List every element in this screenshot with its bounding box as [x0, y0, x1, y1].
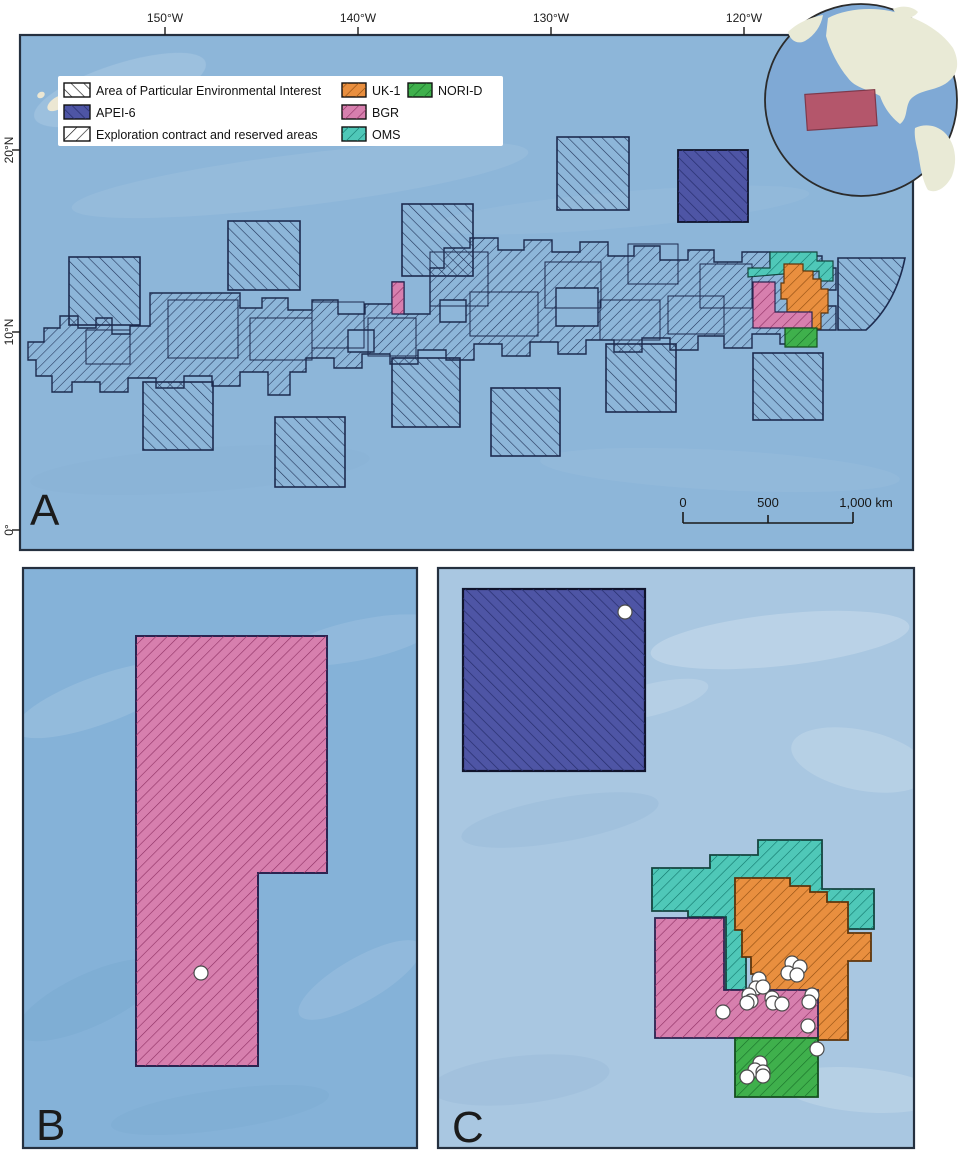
sampling-station-dot	[740, 1070, 754, 1084]
legend-label-apei6: APEI-6	[96, 106, 136, 120]
legend-label-bgr: BGR	[372, 106, 399, 120]
legend-label-apei: Area of Particular Environmental Interes…	[96, 84, 322, 98]
sampling-station-dot	[716, 1005, 730, 1019]
globe-inset	[765, 4, 957, 196]
panel-c-map: C	[428, 568, 942, 1152]
sampling-station-dot	[790, 968, 804, 982]
legend-label-uk1: UK-1	[372, 84, 401, 98]
legend-label-oms: OMS	[372, 128, 400, 142]
y-axis: 20°N 10°N 0°	[2, 137, 20, 536]
sampling-stations-b	[194, 966, 208, 980]
apei-area	[69, 257, 140, 325]
y-tick-10n: 10°N	[2, 319, 16, 346]
scale-label-0: 0	[679, 495, 686, 510]
legend: Area of Particular Environmental Interes…	[58, 76, 503, 146]
bgr-area-west-hatch	[392, 282, 404, 314]
figure-canvas: 150°W 140°W 130°W 120°W 20°N 10°N 0° Are…	[0, 0, 960, 1156]
apei-area	[402, 204, 473, 276]
legend-swatch-contract-hatch	[64, 127, 90, 141]
apei6-area-a	[678, 150, 748, 222]
scale-label-500: 500	[757, 495, 779, 510]
legend-swatch-apei-hatch	[64, 83, 90, 97]
y-tick-20n: 20°N	[2, 137, 16, 164]
apei-area	[753, 353, 823, 420]
sampling-station-dot	[802, 995, 816, 1009]
y-tick-0: 0°	[2, 524, 16, 536]
apei-area	[143, 382, 213, 450]
apei-area	[392, 358, 460, 427]
sampling-station-dot	[740, 996, 754, 1010]
globe-highlight-region	[805, 90, 877, 131]
scale-label-1000km: 1,000 km	[839, 495, 892, 510]
panel-b-map: B	[7, 568, 443, 1150]
panel-b-label: B	[36, 1101, 65, 1150]
x-axis: 150°W 140°W 130°W 120°W	[147, 11, 763, 35]
sampling-station-dot	[810, 1042, 824, 1056]
panel-a-map: 150°W 140°W 130°W 120°W 20°N 10°N 0° Are…	[2, 4, 957, 550]
apei-area	[275, 417, 345, 487]
legend-label-contract: Exploration contract and reserved areas	[96, 128, 318, 142]
x-tick-130w: 130°W	[533, 11, 570, 25]
sampling-station-dot	[194, 966, 208, 980]
apei6-area-c	[463, 589, 645, 771]
x-tick-120w: 120°W	[726, 11, 763, 25]
apei-area	[557, 137, 629, 210]
sampling-station-dot	[756, 1069, 770, 1083]
panel-c-label: C	[452, 1103, 484, 1152]
apei-area	[491, 388, 560, 456]
sampling-station-dot	[801, 1019, 815, 1033]
sampling-station-dot	[618, 605, 632, 619]
panel-a-label: A	[30, 486, 60, 535]
x-tick-150w: 150°W	[147, 11, 184, 25]
apei-area	[228, 221, 300, 290]
legend-label-norid: NORI-D	[438, 84, 482, 98]
sampling-station-dot	[775, 997, 789, 1011]
x-tick-140w: 140°W	[340, 11, 377, 25]
apei-area	[606, 344, 676, 412]
norid-area-c	[735, 1038, 818, 1097]
